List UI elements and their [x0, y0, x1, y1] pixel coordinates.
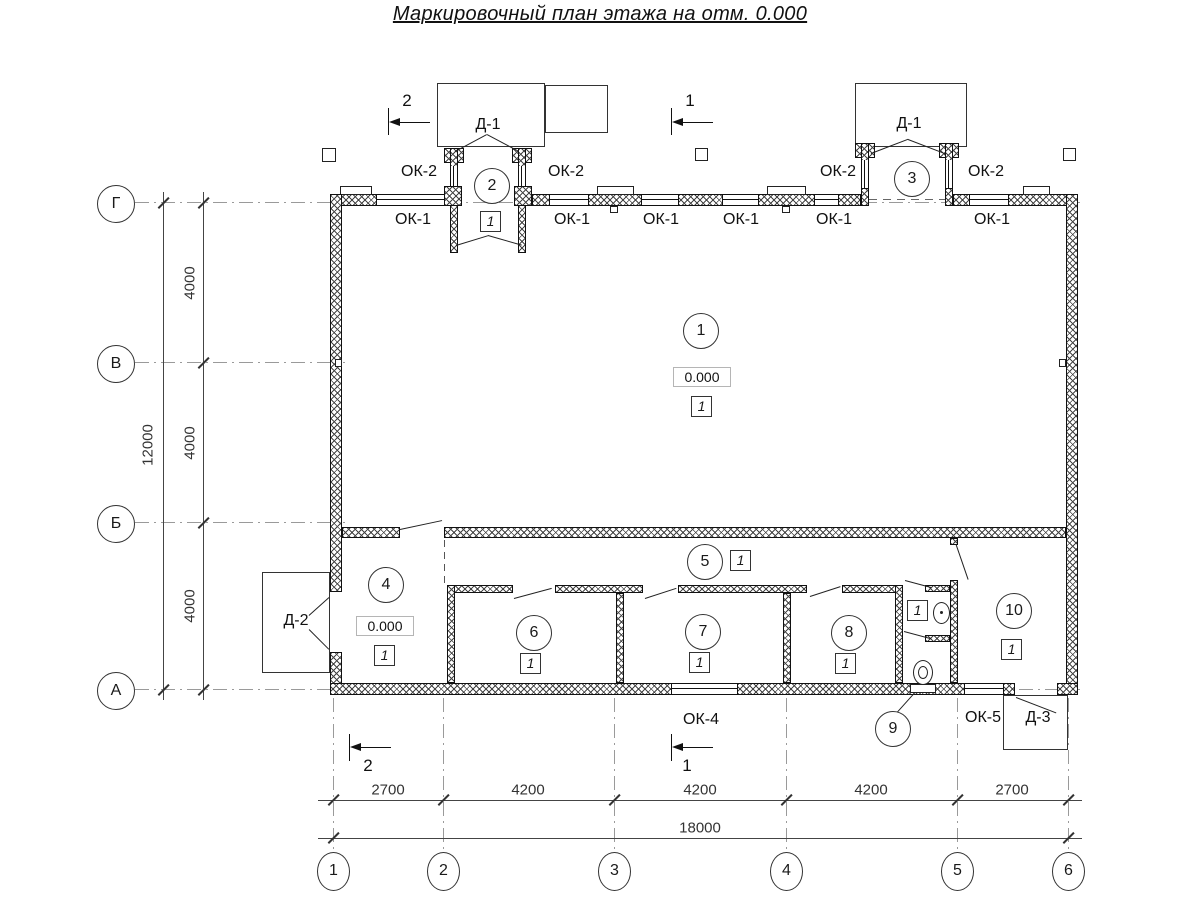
wall-bottom-seg [330, 683, 672, 695]
floor-plan-sheet: Маркировочный план этажа на отм. 0.000 [0, 0, 1200, 900]
dim-line-left-total [163, 192, 164, 700]
dim-text: 4000 [182, 589, 199, 622]
dim-text: 2700 [995, 782, 1028, 799]
elevation-mark: 0.000 [356, 616, 414, 636]
axis-label: 5 [953, 862, 962, 879]
window-label-ok1: ОК-1 [816, 211, 852, 229]
floor-type-mark: 1 [1001, 639, 1022, 660]
door-label-d1: Д-1 [475, 116, 500, 134]
door-label-d1: Д-1 [896, 115, 921, 133]
room-circle-4: 4 [368, 567, 404, 603]
wall-top-seg [588, 194, 642, 206]
drawing-title: Маркировочный план этажа на отм. 0.000 [393, 3, 807, 26]
axis-bubble-row-a: А [97, 672, 135, 710]
partition-corridor-seg [555, 585, 643, 593]
section-arrowhead [672, 743, 683, 751]
room-circle-1: 1 [683, 313, 719, 349]
pilaster [767, 186, 806, 195]
room-circle-6: 6 [516, 615, 552, 651]
wall-top-seg [953, 194, 970, 206]
floor-type-mark: 1 [520, 653, 541, 674]
axis-label: А [111, 682, 122, 699]
wall-right [1066, 194, 1078, 695]
window-label-ok4: ОК-4 [683, 711, 719, 729]
dim-line-left-segments [203, 192, 204, 700]
opening-dashed-line [869, 199, 945, 200]
axis-label: 3 [610, 862, 619, 879]
axis-line-row-v [135, 362, 345, 363]
room-circle-10: 10 [996, 593, 1032, 629]
vestibule-wall [945, 143, 953, 161]
partition-corridor-seg [678, 585, 807, 593]
floor-type-mark: 1 [691, 396, 712, 417]
section-arrowhead [389, 118, 400, 126]
section-label: 1 [685, 91, 694, 111]
axis-line-col-1 [333, 698, 334, 852]
room-number: 5 [701, 553, 710, 570]
wall-row-b-seg [444, 527, 1066, 538]
room-number: 6 [530, 624, 539, 641]
vestibule-wall [861, 143, 869, 161]
vestibule-wall [945, 188, 953, 206]
door-leaf-room6 [514, 588, 552, 599]
axis-line-col-3 [614, 698, 615, 852]
partition-room6-7 [616, 593, 624, 683]
floor-type-mark: 1 [835, 653, 856, 674]
room-number: 3 [908, 170, 917, 187]
dim-text: 4200 [683, 782, 716, 799]
square-marker [1063, 148, 1076, 161]
opening-dashed-line [444, 540, 445, 585]
axis-marker [782, 206, 790, 213]
square-marker [322, 148, 336, 162]
partition-room8-wc [895, 585, 903, 683]
window-label-ok2: ОК-2 [820, 163, 856, 181]
window-ok4 [672, 683, 737, 695]
door-leaf [488, 235, 522, 246]
dim-text-total: 18000 [679, 820, 721, 837]
wall-top-seg [532, 194, 550, 206]
window-label-ok1: ОК-1 [643, 211, 679, 229]
floor-type-mark: 1 [374, 645, 395, 666]
section-arrowhead [672, 118, 683, 126]
wall-top-seg [758, 194, 815, 206]
window-label-ok1: ОК-1 [554, 211, 590, 229]
vestibule-wall [518, 148, 526, 167]
wall-bottom-seg [1003, 683, 1015, 695]
pilaster [340, 186, 372, 195]
window-label-ok2: ОК-2 [401, 163, 437, 181]
window-ok1 [815, 194, 838, 206]
elevation-mark: 0.000 [673, 367, 731, 387]
door-label-d3: Д-3 [1025, 709, 1050, 727]
window-ok1 [970, 194, 1008, 206]
section-arrowhead [350, 743, 361, 751]
window-ok1 [550, 194, 588, 206]
wall-row-b-seg [342, 527, 400, 538]
door-leaf-room10 [955, 544, 968, 579]
axis-label: Г [112, 195, 121, 212]
room-circle-3: 3 [894, 161, 930, 197]
window-ok1 [723, 194, 758, 206]
partition-corridor-seg [447, 585, 513, 593]
axis-label: 2 [439, 862, 448, 879]
room-number: 8 [845, 624, 854, 641]
partition-wc-10-stub [950, 538, 958, 545]
dim-line-bottom-segments [318, 800, 1082, 801]
room-number: 9 [889, 720, 898, 737]
dim-text: 4000 [182, 266, 199, 299]
pilaster [597, 186, 634, 195]
floor-type-mark: 1 [689, 652, 710, 673]
axis-bubble-row-g: Г [97, 185, 135, 223]
square-marker [695, 148, 708, 161]
vestibule-pier [514, 186, 532, 206]
door-leaf-room7 [645, 588, 677, 599]
axis-line-col-2 [443, 698, 444, 852]
axis-line-col-6 [1068, 698, 1069, 852]
partition-wc-10 [950, 580, 958, 683]
wall-top-seg [838, 194, 861, 206]
window-ok2 [861, 160, 869, 190]
window-ok1 [642, 194, 678, 206]
door-label-d2: Д-2 [283, 612, 308, 630]
axis-line-col-4 [786, 698, 787, 852]
pilaster [1023, 186, 1050, 195]
axis-label: 6 [1064, 862, 1073, 879]
section-label: 2 [402, 91, 411, 111]
door-leaf-room8 [810, 586, 841, 597]
room-number: 10 [1005, 602, 1023, 619]
room-circle-7: 7 [685, 614, 721, 650]
axis-bubble-col-2: 2 [427, 852, 460, 891]
axis-marker [335, 359, 342, 367]
room-number: 4 [382, 576, 391, 593]
axis-bubble-row-b: Б [97, 505, 135, 543]
vestibule-pier [444, 186, 462, 206]
toilet-tank-icon [910, 684, 936, 693]
window-ok2 [945, 160, 953, 190]
entrance-porch-left-annex [545, 85, 608, 133]
door-leaf [400, 520, 442, 530]
window-ok5 [965, 683, 1003, 695]
vestibule-wall [861, 188, 869, 206]
wall-bottom-corner [1057, 683, 1078, 695]
dim-text: 2700 [371, 782, 404, 799]
room-circle-5: 5 [687, 544, 723, 580]
dim-line-bottom-total [318, 838, 1082, 839]
partition-room7-8 [783, 593, 791, 683]
axis-bubble-col-6: 6 [1052, 852, 1085, 891]
window-label-ok1: ОК-1 [723, 211, 759, 229]
axis-label: В [111, 355, 122, 372]
axis-label: 1 [329, 862, 338, 879]
axis-marker [610, 206, 618, 213]
axis-bubble-col-1: 1 [317, 852, 350, 891]
axis-line-row-b [135, 522, 345, 523]
dim-text: 4000 [182, 426, 199, 459]
axis-bubble-col-3: 3 [598, 852, 631, 891]
section-label: 1 [682, 756, 691, 776]
axis-label: Б [111, 515, 122, 532]
partition-room4-6 [447, 585, 455, 683]
wall-top-seg [678, 194, 723, 206]
floor-type-mark: 1 [730, 550, 751, 571]
room-number: 7 [699, 623, 708, 640]
window-label-ok2: ОК-2 [548, 163, 584, 181]
axis-marker [1059, 359, 1066, 367]
door-leaf [456, 235, 489, 246]
room-circle-9: 9 [875, 711, 911, 747]
dim-text: 4200 [511, 782, 544, 799]
floor-type-mark: 1 [480, 211, 501, 232]
toilet-bowl-inner-icon [918, 666, 928, 679]
room-circle-2: 2 [474, 168, 510, 204]
floor-type-mark: 1 [907, 600, 928, 621]
room-number: 1 [697, 322, 706, 339]
axis-bubble-col-4: 4 [770, 852, 803, 891]
window-label-ok5: ОК-5 [965, 709, 1001, 727]
axis-bubble-col-5: 5 [941, 852, 974, 891]
axis-label: 4 [782, 862, 791, 879]
window-ok1 [377, 194, 444, 206]
section-label: 2 [363, 756, 372, 776]
window-label-ok1: ОК-1 [974, 211, 1010, 229]
wall-left [330, 194, 342, 592]
window-label-ok2: ОК-2 [968, 163, 1004, 181]
room-circle-8: 8 [831, 615, 867, 651]
axis-bubble-row-v: В [97, 345, 135, 383]
room-number: 2 [488, 177, 497, 194]
dim-text: 4200 [854, 782, 887, 799]
window-label-ok1: ОК-1 [395, 211, 431, 229]
partition-corridor-seg [842, 585, 900, 593]
axis-line-col-5 [957, 698, 958, 852]
dim-text-total: 12000 [140, 424, 157, 466]
sink-drain-icon [940, 611, 943, 614]
